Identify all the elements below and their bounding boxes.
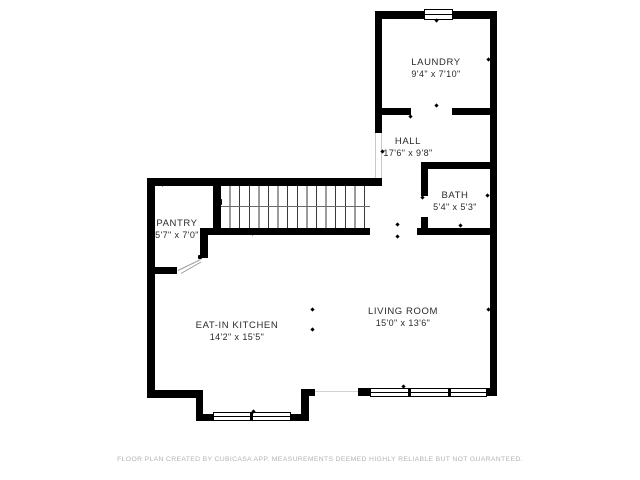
wall-segment: [200, 228, 370, 235]
wall-segment: [358, 388, 370, 396]
wall-segment: [200, 228, 208, 258]
room-dims: 5'7" x 7'0": [155, 230, 199, 241]
doorway-opening: [375, 133, 382, 178]
wall-segment: [147, 178, 155, 398]
wall-segment: [490, 11, 497, 396]
wall-segment: [421, 162, 428, 196]
room-name: HALL: [383, 136, 432, 148]
footer-disclaimer: FLOOR PLAN CREATED BY CUBICASA APP. MEAS…: [0, 456, 640, 463]
room-label-living-room: LIVING ROOM 15'0" x 13'6": [368, 306, 438, 329]
stairs-rail-line: [221, 206, 370, 207]
measure-tick: [408, 114, 412, 118]
room-name: LIVING ROOM: [368, 306, 438, 318]
bay-window-symbol: [213, 412, 291, 421]
room-label-pantry: PANTRY 5'7" x 7'0": [155, 218, 199, 241]
measure-tick: [434, 18, 438, 22]
measure-tick: [434, 103, 438, 107]
measure-tick: [485, 193, 489, 197]
room-name: EAT-IN KITCHEN: [196, 320, 279, 332]
room-dims: 5'4" x 5'3": [433, 202, 477, 213]
floor-plan: LAUNDRY 9'4" x 7'10" HALL 17'6" x 9'8" B…: [0, 0, 640, 480]
room-dims: 9'4" x 7'10": [411, 69, 460, 80]
room-name: LAUNDRY: [411, 57, 460, 69]
room-label-bath: BATH 5'4" x 5'3": [433, 190, 477, 213]
room-name: PANTRY: [155, 218, 199, 230]
room-dims: 14'2" x 15'5": [196, 332, 279, 343]
stairs-treads: [221, 186, 368, 228]
wall-segment: [147, 178, 382, 186]
window-symbol: [424, 9, 453, 20]
wall-segment: [452, 108, 490, 115]
measure-tick: [458, 223, 462, 227]
window-symbol: [370, 388, 487, 397]
measure-tick: [395, 234, 399, 238]
stair-door-marker: [215, 199, 222, 205]
room-dims: 17'6" x 9'8": [383, 148, 432, 159]
wall-segment: [196, 414, 213, 421]
wall-segment: [375, 11, 424, 19]
wall-opening-line: [315, 391, 358, 392]
wall-segment: [421, 162, 490, 169]
room-label-laundry: LAUNDRY 9'4" x 7'10": [411, 57, 460, 80]
wall-segment: [147, 267, 177, 274]
wall-segment: [375, 108, 411, 115]
door-pivot: [198, 255, 202, 259]
room-name: BATH: [433, 190, 477, 202]
measure-tick: [395, 222, 399, 226]
room-label-eat-in-kitchen: EAT-IN KITCHEN 14'2" x 15'5": [196, 320, 279, 343]
measure-tick: [310, 327, 314, 331]
wall-segment: [417, 228, 490, 235]
measure-tick: [310, 307, 314, 311]
room-label-hall: HALL 17'6" x 9'8": [383, 136, 432, 159]
wall-segment: [301, 389, 315, 396]
wall-segment: [147, 390, 203, 398]
room-dims: 15'0" x 13'6": [368, 318, 438, 329]
measure-tick: [420, 195, 424, 199]
wall-segment: [487, 388, 497, 396]
